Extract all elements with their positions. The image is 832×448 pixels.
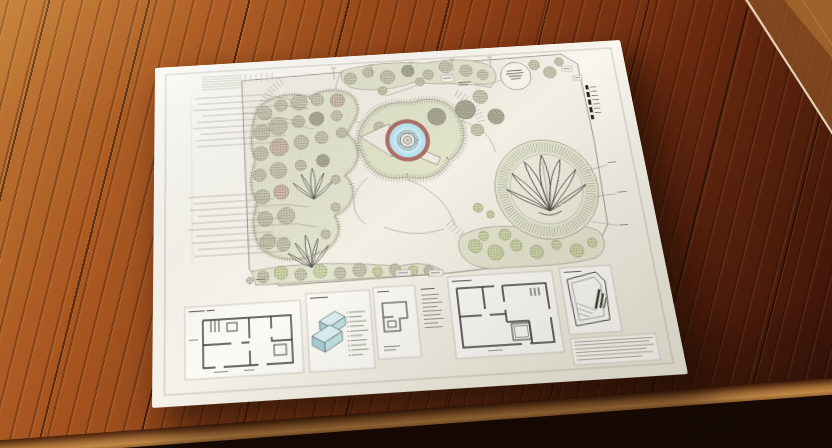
photo-scene (0, 0, 832, 448)
blueprint-sheet (152, 40, 688, 408)
site-plan-drawing (152, 40, 688, 408)
paper-shading (152, 40, 688, 408)
